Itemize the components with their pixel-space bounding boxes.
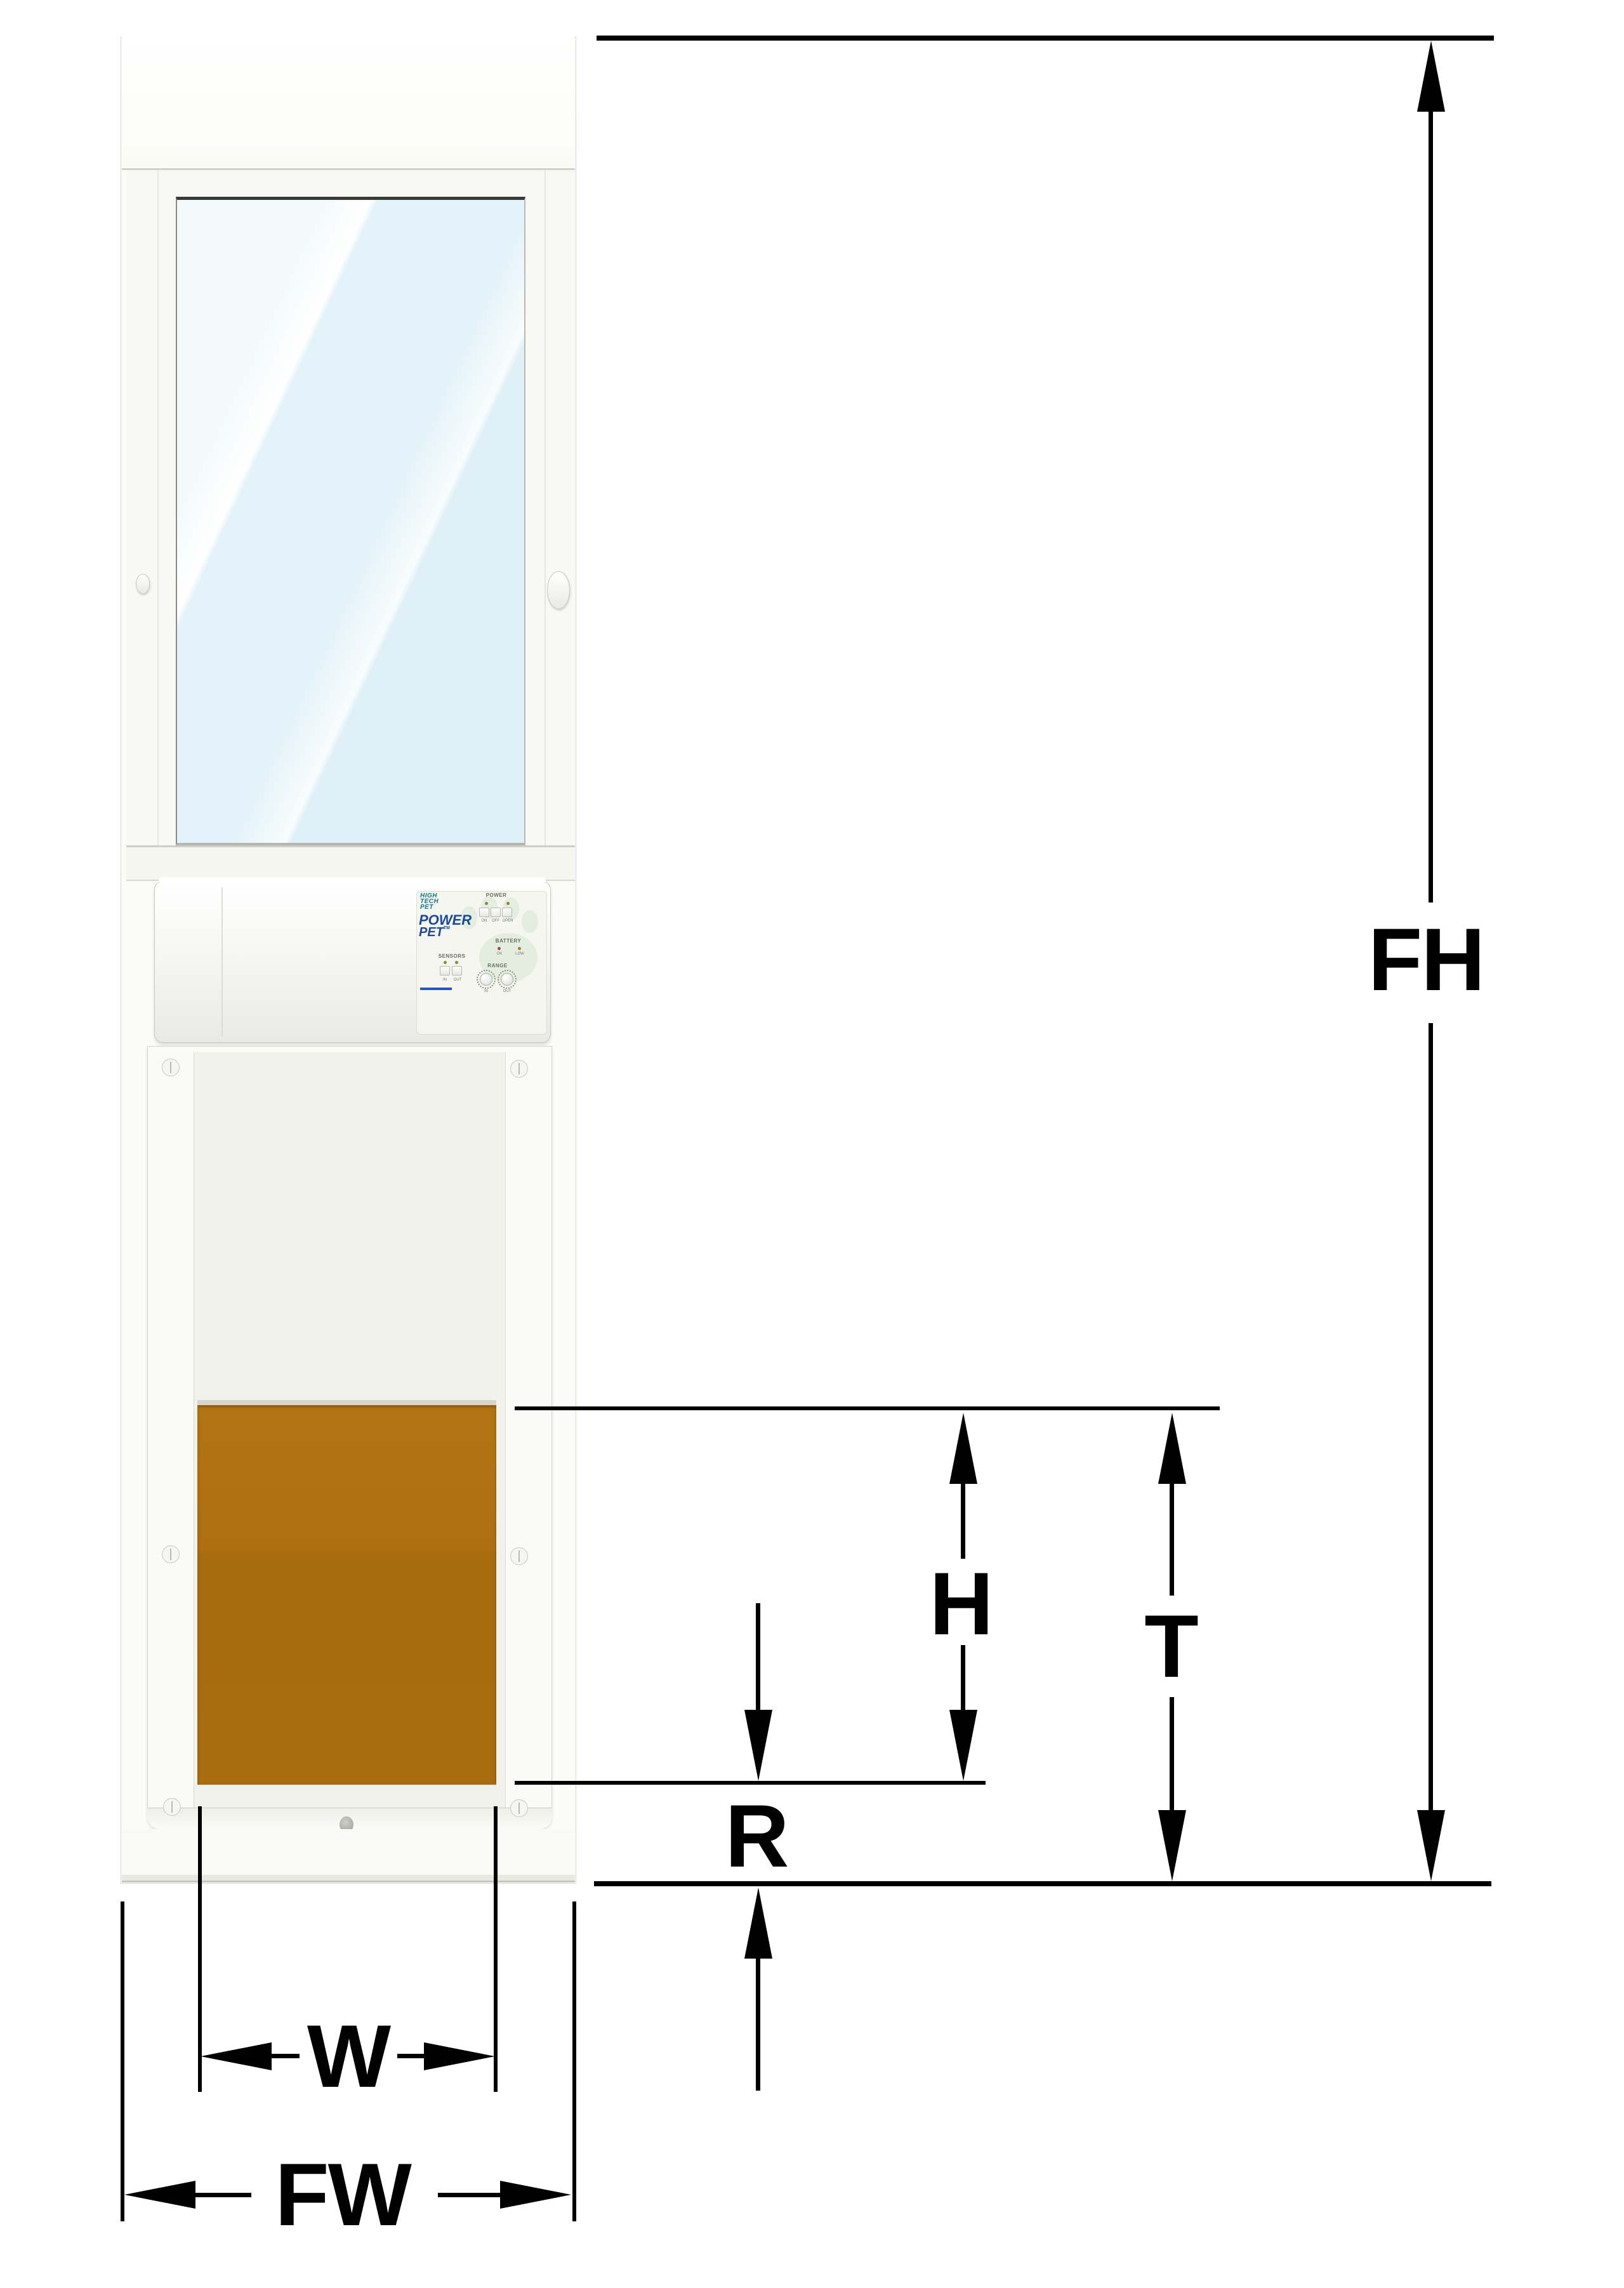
w-arrow-right-icon — [424, 2042, 495, 2070]
screw — [162, 1545, 180, 1563]
brand-logo: HIGH TECH PET — [420, 893, 439, 910]
panel-bottom-edge — [122, 1875, 575, 1882]
h-line-upper — [961, 1481, 965, 1559]
t-arrow-up-icon — [1158, 1413, 1186, 1484]
flap-bottom-reference-line — [515, 1781, 986, 1785]
sensor-led — [444, 961, 447, 964]
r-line-upper — [756, 1603, 760, 1712]
pet-door-dimension-diagram: HIGH TECH PET POWER PETTM POWER ON OFF O… — [0, 0, 1624, 2288]
sensor-in-button — [440, 966, 450, 975]
power-led — [506, 902, 510, 905]
product-name-line2: PETTM — [419, 927, 472, 938]
paw-watermark-toe — [522, 910, 538, 933]
w-arrow-left-icon — [201, 2042, 272, 2070]
window-sill — [126, 845, 575, 881]
w-tail-left — [270, 2054, 300, 2058]
t-arrow-down-icon — [1158, 1810, 1186, 1881]
battery-low-label: LOW — [515, 952, 524, 956]
power-open-button — [502, 908, 512, 917]
fh-line-upper — [1429, 108, 1433, 903]
power-on-button — [479, 908, 489, 917]
power-off-label: OFF — [492, 919, 499, 923]
r-arrow-down-icon — [744, 1710, 772, 1781]
r-line-lower — [756, 1956, 760, 2091]
fineprint-link-bar — [420, 988, 452, 990]
screw — [162, 1059, 180, 1076]
screw — [510, 1060, 528, 1078]
sensor-out-label: OUT — [454, 978, 462, 982]
power-off-button — [491, 908, 501, 917]
rise-label: R — [725, 1792, 788, 1881]
panel-top-header — [122, 37, 575, 170]
battery-ok-led — [498, 947, 501, 950]
right-handle-knob — [547, 571, 570, 609]
window-glass — [176, 197, 525, 845]
h-arrow-down-icon — [949, 1710, 977, 1781]
fw-arrow-right-icon — [500, 2181, 571, 2209]
screw — [510, 1547, 528, 1565]
sensors-section-label: SENSORS — [439, 953, 466, 959]
sensor-out-button — [452, 966, 462, 975]
fh-arrow-down-icon — [1417, 1810, 1445, 1881]
fw-extension-left — [121, 1901, 124, 2221]
range-section-label: RANGE — [487, 963, 507, 969]
fw-arrow-left-icon — [124, 2181, 195, 2209]
range-knob-outdoor — [498, 970, 517, 989]
flap-height-label: H — [929, 1559, 992, 1648]
battery-section-label: BATTERY — [496, 938, 521, 944]
housing-top-highlight — [159, 877, 546, 883]
flap-opening — [197, 1405, 496, 1785]
battery-ok-label: OK — [497, 952, 503, 956]
power-section-label: POWER — [486, 892, 507, 898]
frame-width-label: FW — [275, 2150, 411, 2239]
battery-low-led — [518, 947, 521, 950]
frame-seam-left — [157, 170, 159, 881]
h-arrow-up-icon — [949, 1413, 977, 1484]
frame-seam-right — [545, 170, 546, 881]
trademark-mark: TM — [444, 926, 450, 930]
t-line-upper — [1170, 1481, 1174, 1596]
product-name: POWER PETTM — [419, 914, 472, 939]
step-over-label: T — [1144, 1602, 1198, 1691]
range-in-label: IN — [484, 989, 488, 993]
t-line-lower — [1170, 1697, 1174, 1815]
sensor-in-label: IN — [443, 978, 447, 982]
fw-tail-left — [194, 2193, 251, 2197]
fh-line-lower — [1429, 1023, 1433, 1814]
housing-seam — [221, 887, 223, 1036]
w-tail-right — [397, 2054, 426, 2058]
fh-arrow-up-icon — [1417, 41, 1445, 112]
range-knob-indoor — [477, 970, 496, 989]
sensor-led — [455, 961, 458, 964]
screw — [510, 1799, 528, 1817]
flap-width-label: W — [307, 2012, 390, 2101]
r-arrow-up-icon — [744, 1888, 772, 1959]
power-open-label: OPEN — [502, 919, 513, 923]
range-out-label: OUT — [503, 989, 512, 993]
frame-height-label: FH — [1368, 915, 1484, 1004]
power-on-label: ON — [482, 919, 487, 923]
screw — [163, 1798, 181, 1816]
fw-tail-right — [438, 2193, 500, 2197]
flap-top-lip — [197, 1400, 496, 1405]
top-reference-line — [597, 36, 1494, 41]
fw-extension-right — [572, 1901, 576, 2221]
flap-top-reference-line — [515, 1406, 1220, 1410]
product-name-line1: POWER — [419, 914, 472, 927]
left-latch-knob — [136, 574, 150, 594]
power-led — [485, 902, 488, 905]
brand-logo-line: PET — [420, 904, 439, 910]
h-line-lower — [961, 1645, 965, 1712]
